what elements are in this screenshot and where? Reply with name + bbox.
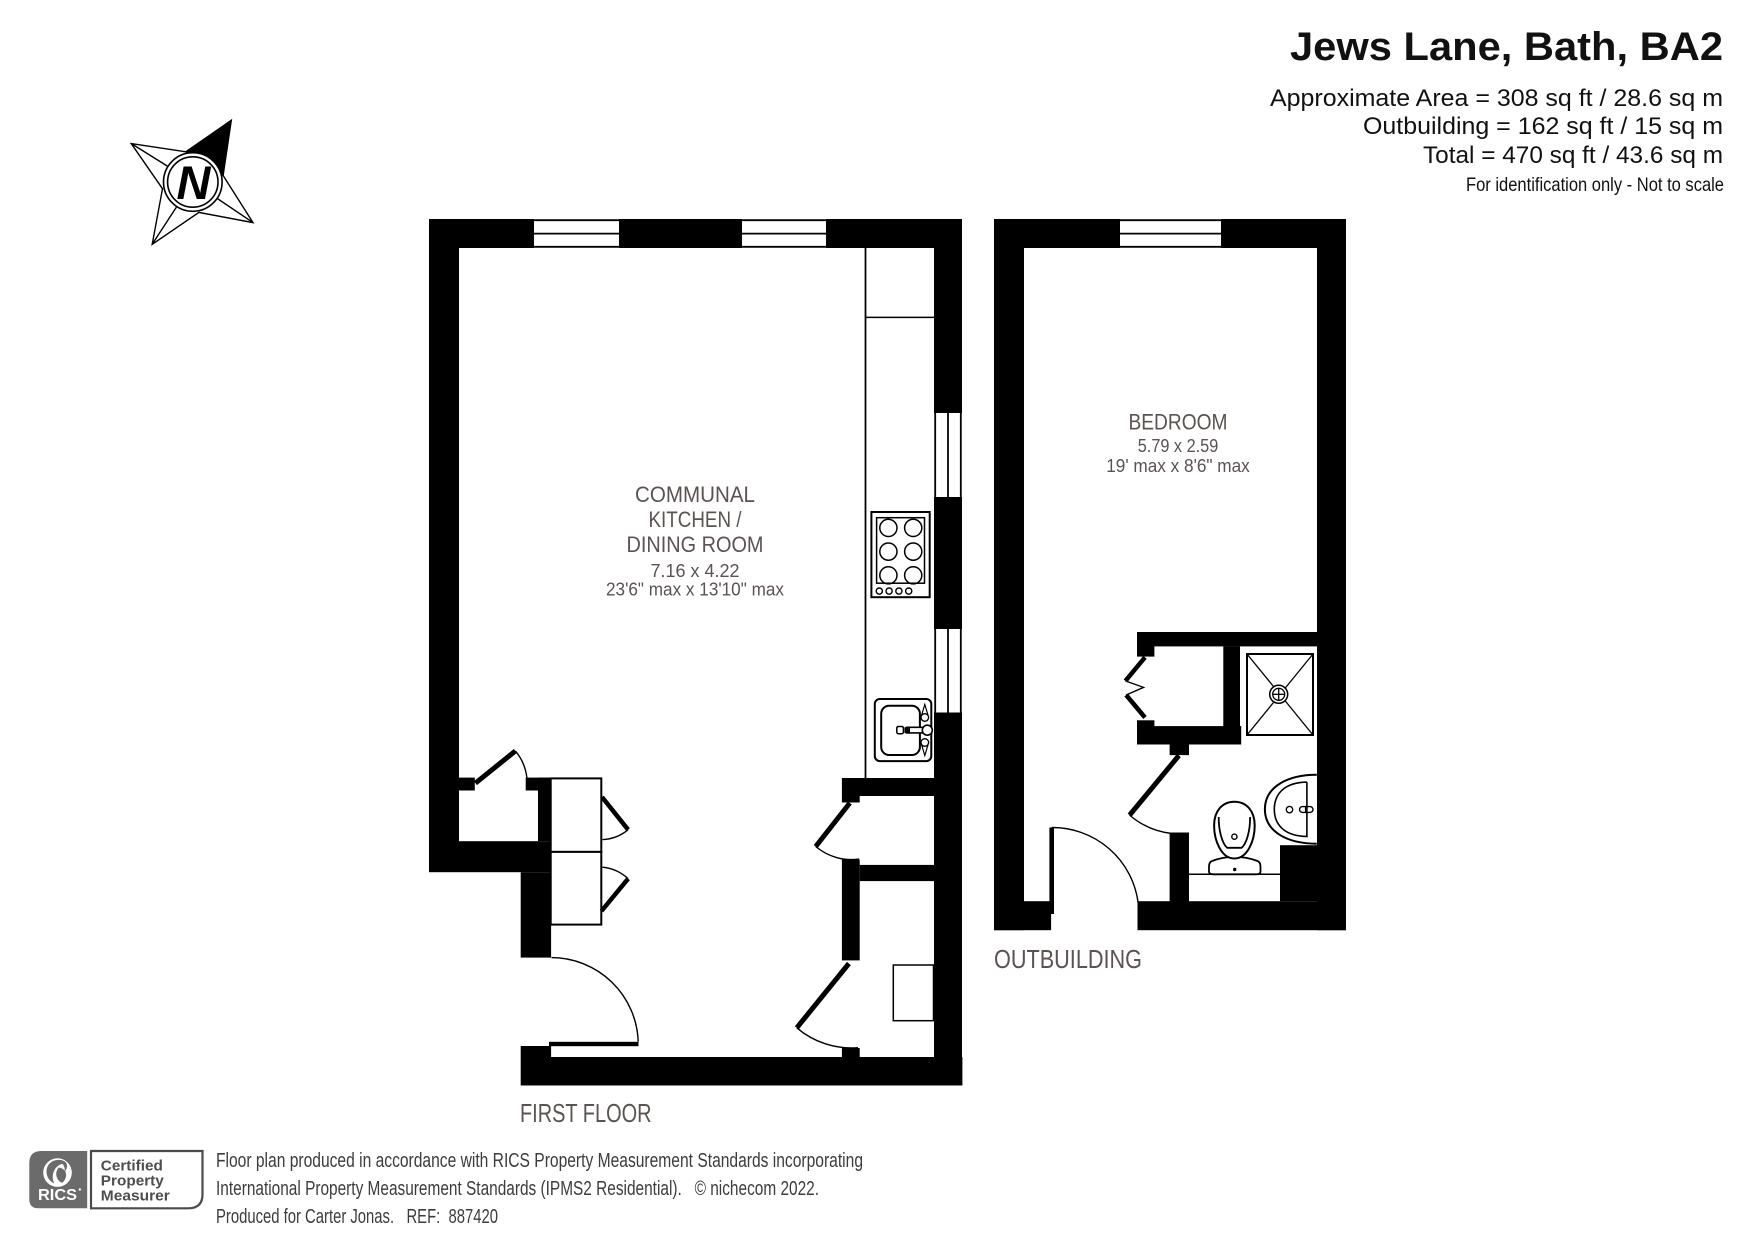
svg-text:DINING ROOM: DINING ROOM (627, 532, 764, 557)
svg-text:RICS: RICS (38, 1187, 77, 1204)
svg-text:BEDROOM: BEDROOM (1129, 410, 1228, 435)
svg-text:Produced for Carter Jonas. R: Produced for Carter Jonas. REF: 887420 (216, 1206, 498, 1228)
svg-text:Approximate Area = 308 sq ft /: Approximate Area = 308 sq ft / 28.6 sq m (1270, 85, 1723, 112)
svg-text:FIRST FLOOR: FIRST FLOOR (520, 1098, 652, 1128)
svg-text:5.79 x 2.59: 5.79 x 2.59 (1138, 436, 1219, 456)
svg-text:Measurer: Measurer (101, 1188, 170, 1205)
svg-text:N: N (177, 156, 212, 209)
svg-text:Floor plan produced in accorda: Floor plan produced in accordance with R… (216, 1150, 863, 1172)
svg-text:23'6" max x 13'10" max: 23'6" max x 13'10" max (606, 580, 784, 600)
svg-text:Total = 470 sq ft / 43.6 sq m: Total = 470 sq ft / 43.6 sq m (1423, 142, 1723, 169)
svg-text:COMMUNAL: COMMUNAL (635, 482, 755, 507)
svg-text:International Property Measure: International Property Measurement Stand… (216, 1178, 819, 1200)
svg-text:19' max x 8'6" max: 19' max x 8'6" max (1106, 456, 1250, 476)
svg-text:Jews Lane, Bath, BA2: Jews Lane, Bath, BA2 (1290, 25, 1723, 69)
svg-text:OUTBUILDING: OUTBUILDING (994, 944, 1142, 974)
svg-text:For identification only - Not: For identification only - Not to scale (1466, 174, 1724, 196)
svg-text:KITCHEN /: KITCHEN / (649, 507, 743, 532)
svg-text:7.16 x 4.22: 7.16 x 4.22 (651, 561, 740, 581)
svg-text:Outbuilding = 162 sq ft / 15 s: Outbuilding = 162 sq ft / 15 sq m (1363, 113, 1723, 140)
